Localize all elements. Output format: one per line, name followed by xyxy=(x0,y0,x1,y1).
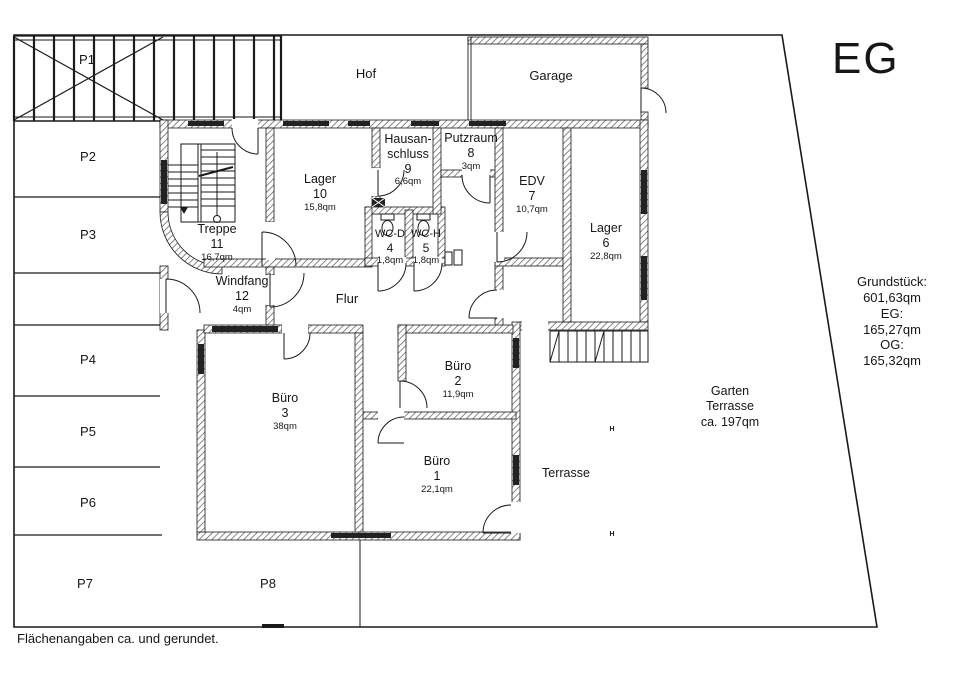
door-buero1 xyxy=(378,417,404,443)
garten-line1: Garten xyxy=(701,384,759,399)
room-label-flur: Flur xyxy=(336,291,358,306)
sink-symbol xyxy=(454,250,462,265)
parking-label-p6: P6 xyxy=(80,495,96,510)
areas-eg: EG: 165,27qm xyxy=(857,306,927,338)
parking-label-p3: P3 xyxy=(80,227,96,242)
areas-grundstueck: Grundstück: 601,63qm xyxy=(857,274,927,306)
parking-label-p7: P7 xyxy=(77,576,93,591)
areas-og: OG: 165,32qm xyxy=(857,337,927,369)
parking-label-p1: P1 xyxy=(79,52,95,67)
door-windfang-flur xyxy=(270,273,304,307)
area-label-garten: Garten Terrasse ca. 197qm xyxy=(701,384,759,430)
area-label-hof: Hof xyxy=(356,66,376,81)
hydrant-marker: H xyxy=(609,531,614,538)
garten-line3: ca. 197qm xyxy=(701,415,759,430)
areas-summary: Grundstück: 601,63qm EG: 165,27qm OG: 16… xyxy=(857,274,927,369)
exterior-steps xyxy=(550,331,648,362)
stairs-symbol xyxy=(168,144,235,223)
door-buero1-terrasse xyxy=(483,505,511,533)
parking-label-p4: P4 xyxy=(80,352,96,367)
door-flur-exit xyxy=(469,290,497,318)
room-label-buero3: Büro 3 38qm xyxy=(272,391,298,432)
room-label-buero1: Büro 1 22,1qm xyxy=(421,454,453,495)
room-label-putzraum: Putzraum 8 3qm xyxy=(444,131,498,172)
parking-label-p2: P2 xyxy=(80,149,96,164)
floorplan-page: EG Hof Garage Terrasse Garten Terrasse c… xyxy=(0,0,960,679)
door-wc-d xyxy=(378,263,406,291)
area-label-terrasse: Terrasse xyxy=(542,466,590,480)
parking-label-p8: P8 xyxy=(260,576,276,591)
room-label-wc-h: WC-H 5 1,8qm xyxy=(411,228,441,266)
area-label-garage: Garage xyxy=(529,68,572,83)
room-label-treppe: Treppe 11 16,7qm xyxy=(197,222,236,263)
floor-title: EG xyxy=(832,34,900,84)
room-label-edv: EDV 7 10,7qm xyxy=(516,174,548,215)
room-label-buero2: Büro 2 11,9qm xyxy=(443,359,474,400)
carport-cross-brace xyxy=(14,37,163,120)
door-entrance xyxy=(166,279,200,313)
door-garage xyxy=(641,88,666,113)
room-label-lager6: Lager 6 22,8qm xyxy=(590,221,622,262)
footnote: Flächenangaben ca. und gerundet. xyxy=(17,631,219,646)
door-hof-treppe xyxy=(232,128,258,154)
room-label-lager10: Lager 10 15,8qm xyxy=(304,172,336,213)
room-label-windfang: Windfang 12 4qm xyxy=(216,274,269,315)
door-buero3 xyxy=(284,333,310,359)
parking-label-p5: P5 xyxy=(80,424,96,439)
room-label-hausanschluss: Hausan- schluss 9 6,6qm xyxy=(384,132,431,187)
door-putzraum xyxy=(462,175,490,203)
room-label-wc-d: WC-D 4 1,8qm xyxy=(375,228,405,266)
sink-symbol xyxy=(445,252,452,265)
door-wc-h xyxy=(414,263,442,291)
garten-line2: Terrasse xyxy=(701,399,759,414)
door-buero2 xyxy=(400,381,427,408)
floorplan-drawing xyxy=(0,0,960,679)
carport-symbol xyxy=(14,36,282,121)
shaft-symbol xyxy=(372,198,385,207)
hydrant-marker: H xyxy=(609,426,614,433)
